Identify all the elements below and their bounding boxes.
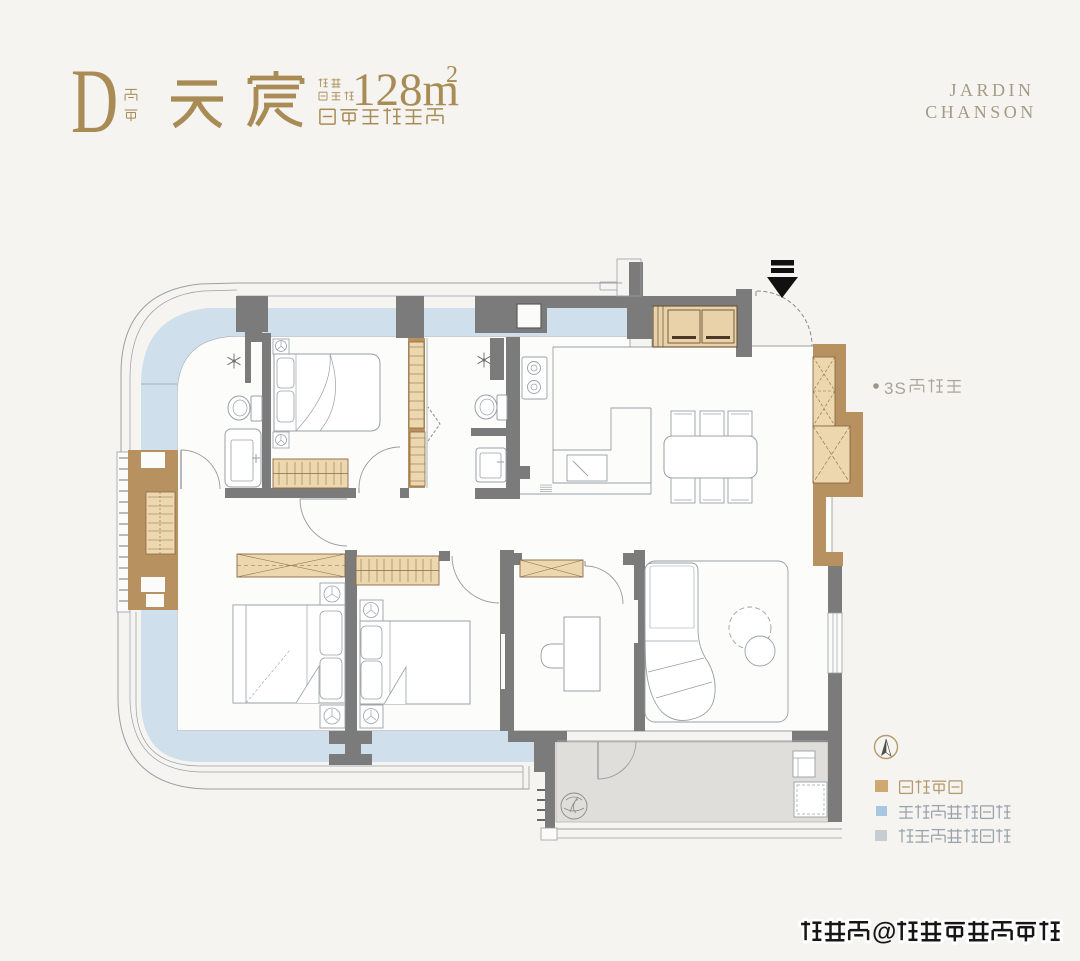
svg-text:JARDIN: JARDIN bbox=[949, 80, 1034, 100]
svg-text:@: @ bbox=[872, 918, 896, 946]
svg-text:D: D bbox=[71, 51, 118, 152]
svg-text:3S: 3S bbox=[884, 379, 907, 398]
svg-text:2: 2 bbox=[446, 62, 458, 88]
svg-text:CHANSON: CHANSON bbox=[925, 102, 1037, 122]
svg-text:128m: 128m bbox=[352, 64, 459, 116]
